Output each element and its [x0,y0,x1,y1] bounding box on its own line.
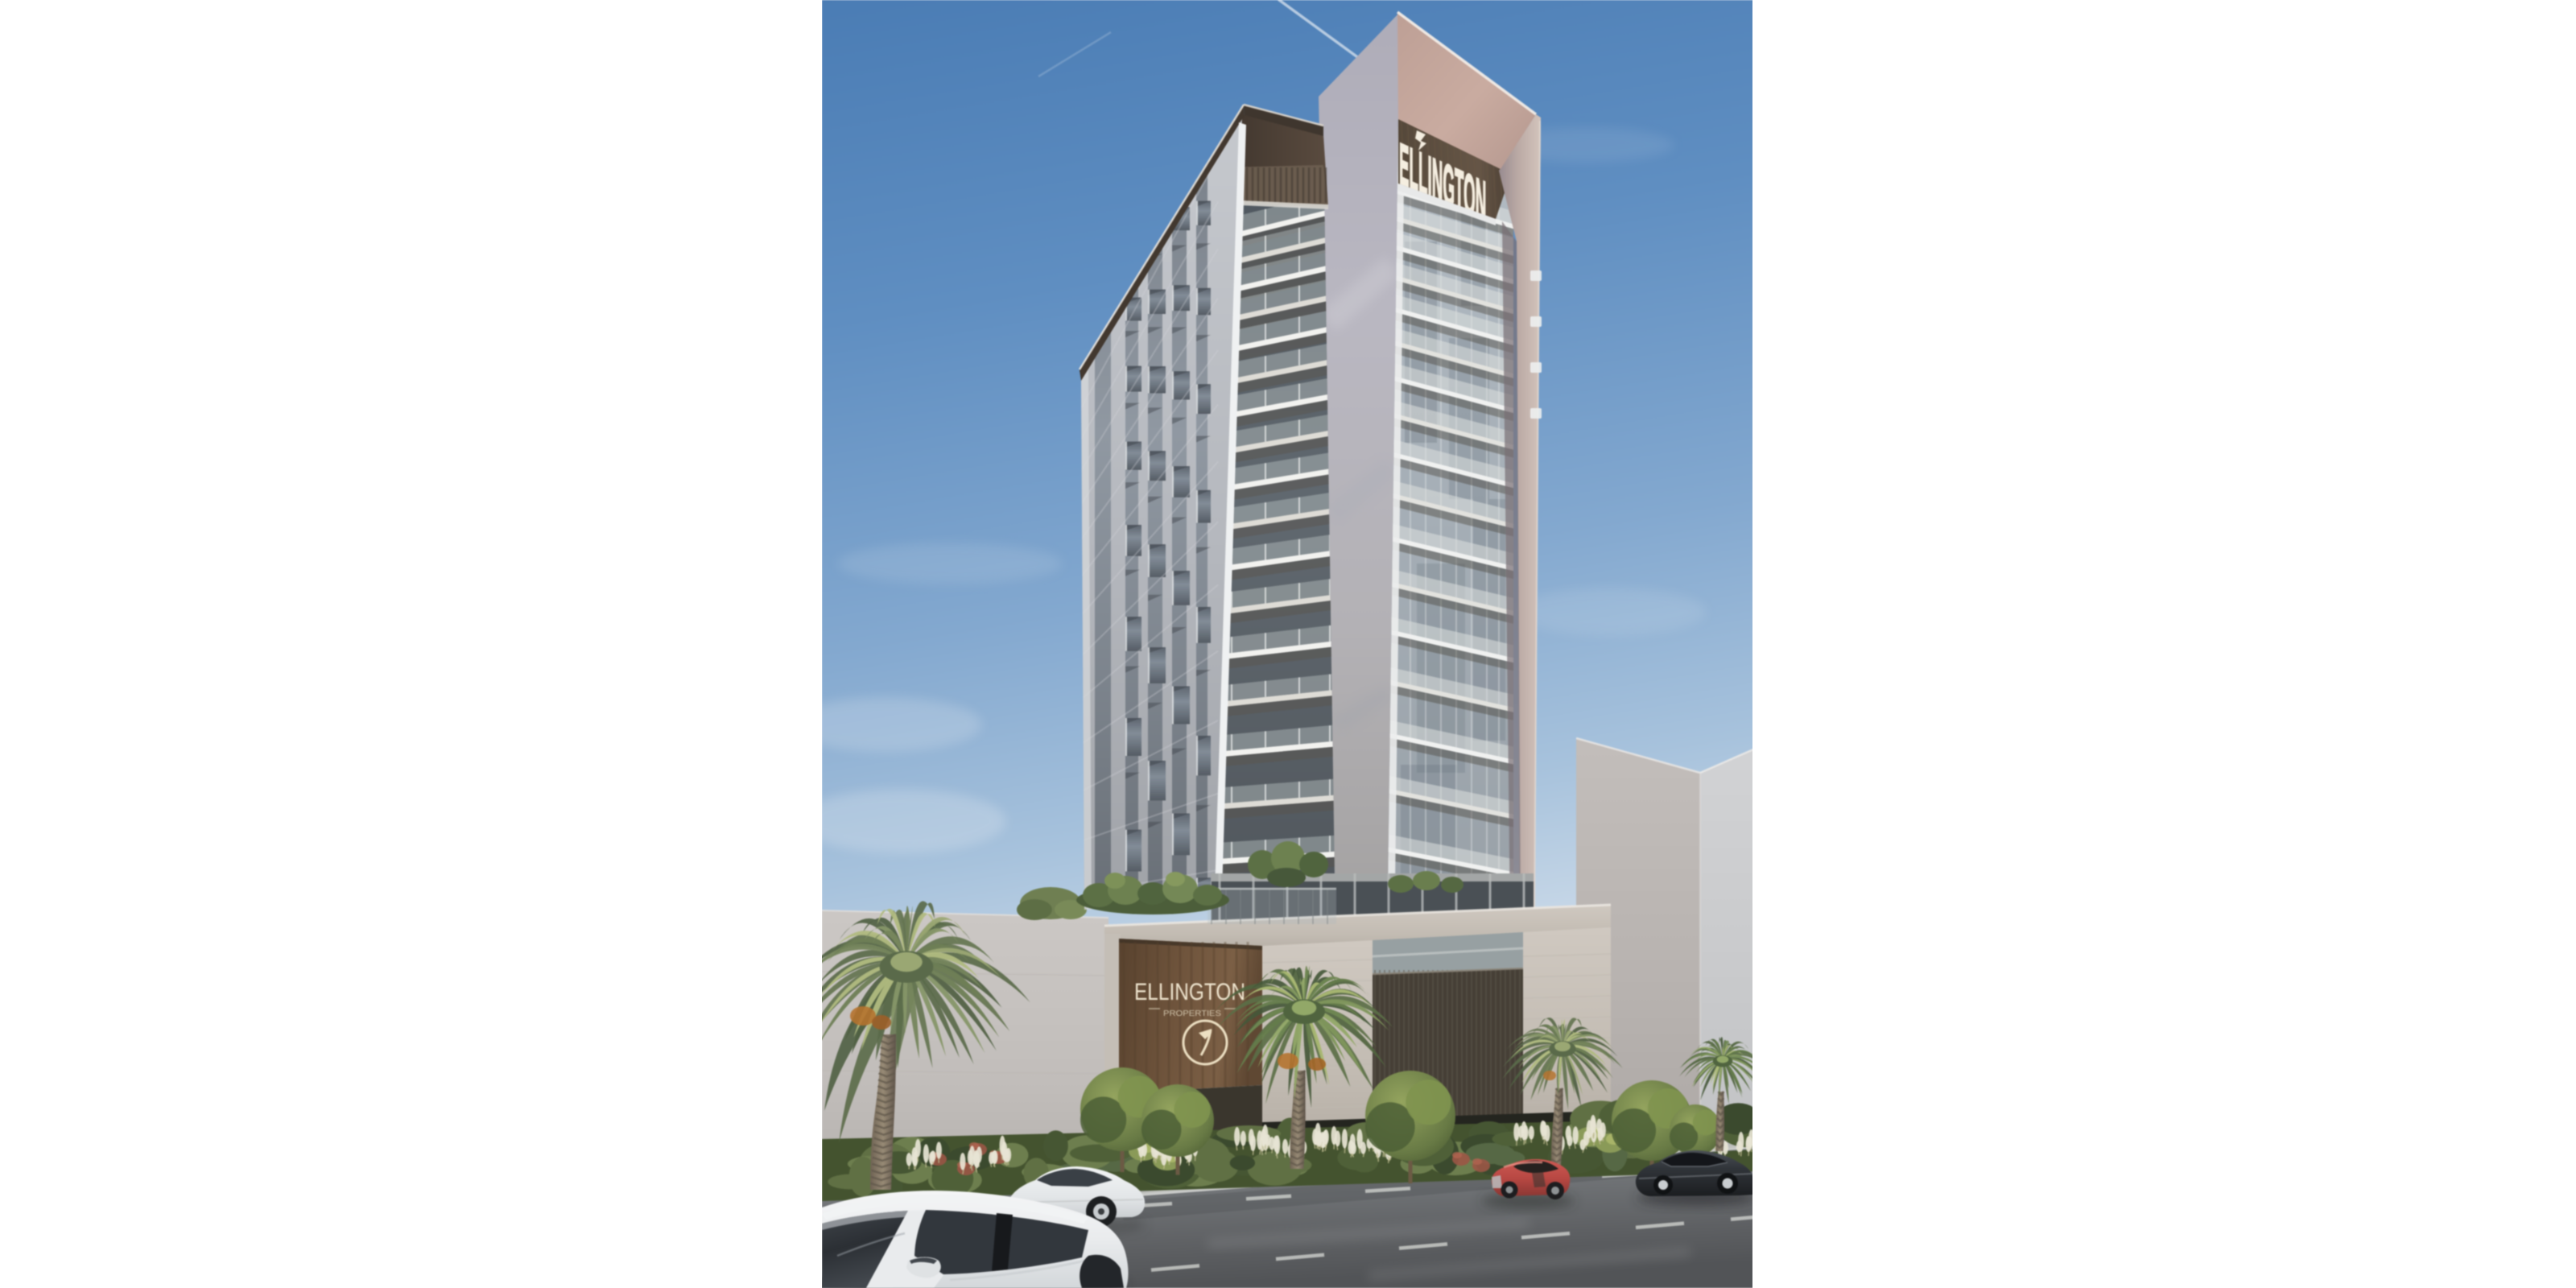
svg-text:PROPERTIES: PROPERTIES [1163,1009,1221,1018]
svg-text:ELLINGTON: ELLINGTON [1134,979,1245,1005]
